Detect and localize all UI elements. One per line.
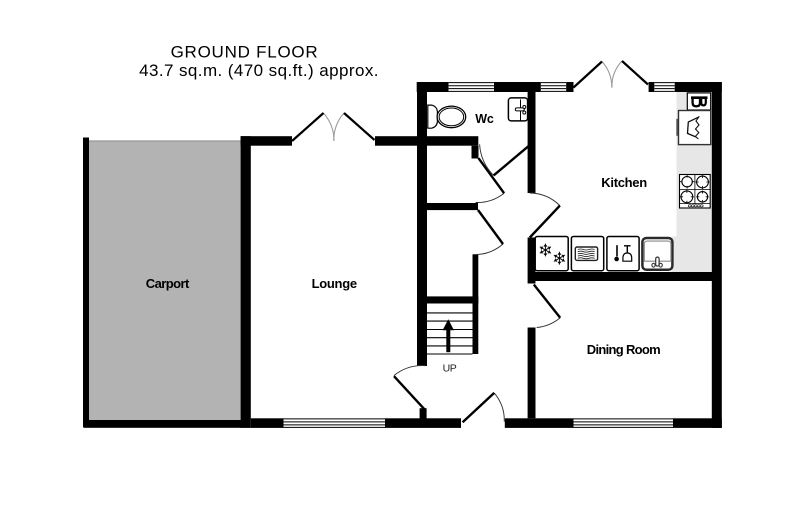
svg-text:Wc: Wc — [475, 112, 494, 126]
svg-text:UP: UP — [443, 363, 457, 375]
svg-text:Carport: Carport — [146, 276, 190, 291]
svg-text:GROUND FLOOR: GROUND FLOOR — [171, 43, 319, 62]
svg-text:43.7 sq.m. (470 sq.ft.) approx: 43.7 sq.m. (470 sq.ft.) approx. — [139, 61, 379, 80]
svg-text:Lounge: Lounge — [312, 276, 357, 291]
svg-text:Kitchen: Kitchen — [601, 175, 647, 190]
svg-text:Dining Room: Dining Room — [587, 342, 660, 357]
